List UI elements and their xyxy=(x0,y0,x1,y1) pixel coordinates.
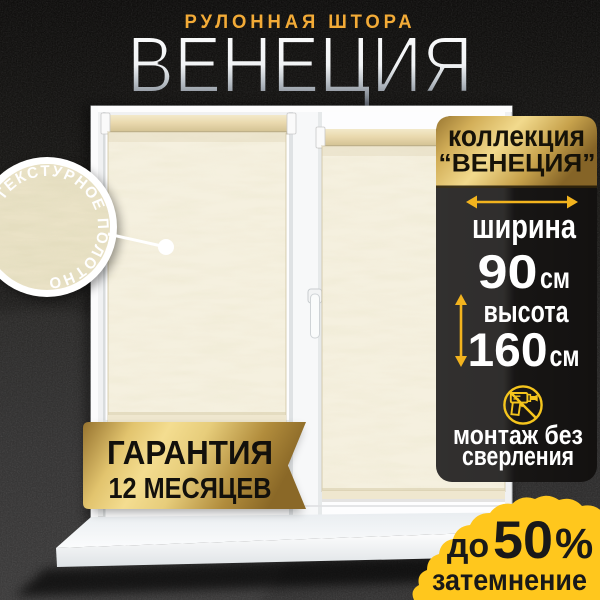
svg-text:затемнение: затемнение xyxy=(432,564,587,597)
svg-text:12 МЕСЯЦЕВ: 12 МЕСЯЦЕВ xyxy=(109,473,272,505)
svg-text:50: 50 xyxy=(493,511,553,570)
svg-text:см: см xyxy=(540,262,570,295)
svg-text:коллекция: коллекция xyxy=(448,120,585,153)
svg-text:160: 160 xyxy=(468,323,548,376)
svg-text:ширина: ширина xyxy=(472,208,577,246)
svg-text:ГАРАНТИЯ: ГАРАНТИЯ xyxy=(107,434,273,471)
svg-text:ВЕНЕЦИЯ: ВЕНЕЦИЯ xyxy=(127,20,473,109)
svg-text:см: см xyxy=(550,340,580,373)
svg-text:%: % xyxy=(555,520,593,568)
svg-text:до: до xyxy=(447,527,489,565)
svg-text:90: 90 xyxy=(478,245,538,298)
svg-text:сверления: сверления xyxy=(462,441,574,471)
svg-text:“ВЕНЕЦИЯ”: “ВЕНЕЦИЯ” xyxy=(439,150,596,178)
